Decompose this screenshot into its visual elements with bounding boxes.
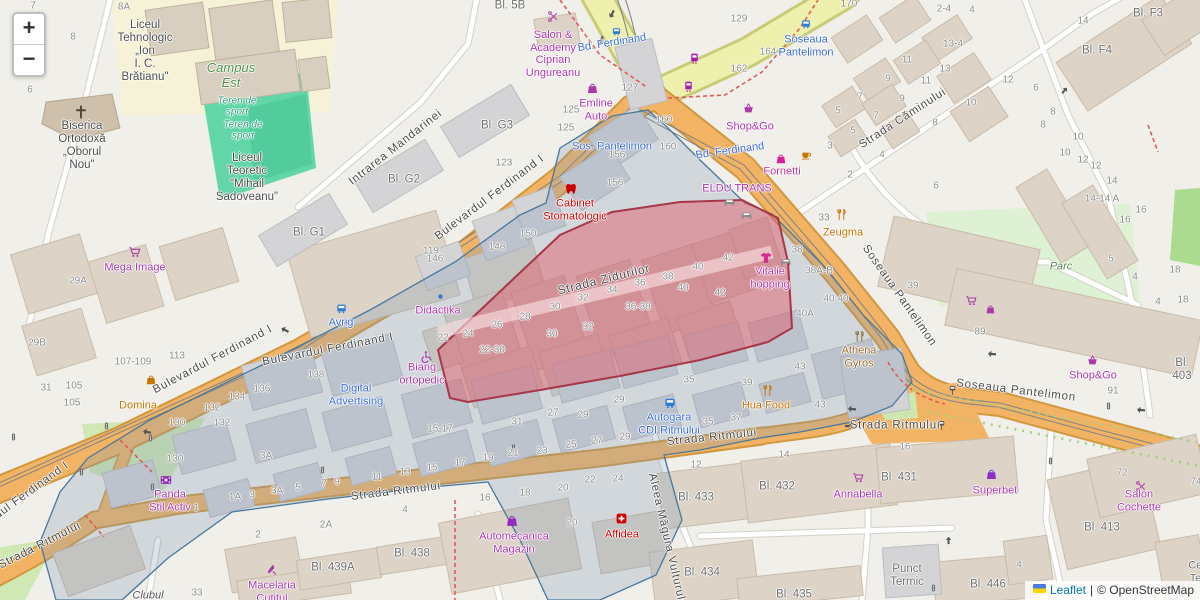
attribution-bar: Leaflet|© OpenStreetMap <box>1025 581 1200 600</box>
green-patch-right <box>1170 188 1200 266</box>
base-map <box>0 0 1200 600</box>
zoom-out-button[interactable]: − <box>14 45 44 75</box>
attribution-separator: | <box>1090 583 1093 597</box>
zoom-control: + − <box>12 12 46 77</box>
zoom-in-button[interactable]: + <box>14 14 44 45</box>
leaflet-link[interactable]: Leaflet <box>1050 583 1086 597</box>
map-canvas[interactable]: Bulevardul Ferdinand IBulevardul Ferdina… <box>0 0 1200 600</box>
ukraine-flag-icon <box>1033 584 1046 593</box>
osm-link[interactable]: © OpenStreetMap <box>1097 583 1194 597</box>
